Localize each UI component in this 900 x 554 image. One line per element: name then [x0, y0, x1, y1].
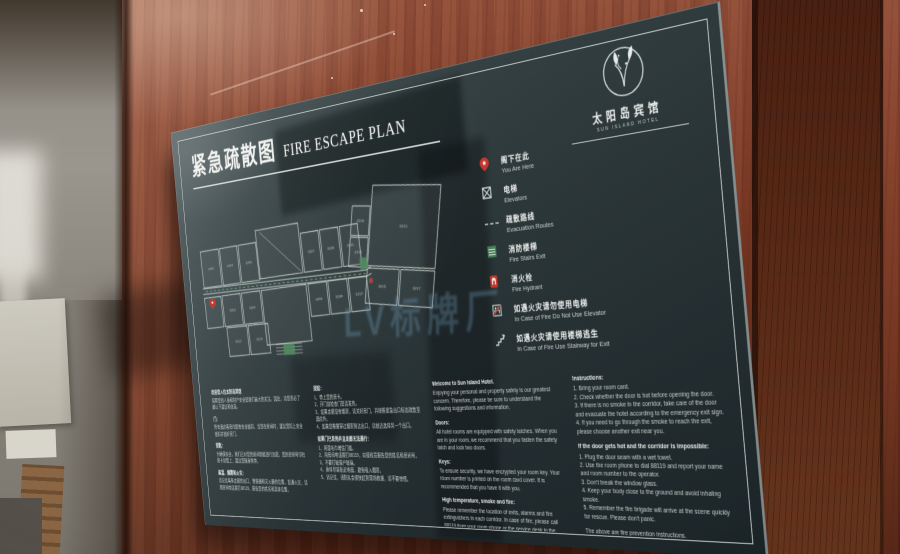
fire-hydrant-marker — [369, 278, 373, 282]
text-paragraph: All hotel rooms are equipped with safety… — [436, 428, 563, 453]
scene: 紧急疏散图 FIRE ESCAPE PLAN 太阳岛宾馆 SUN ISLAND … — [0, 0, 900, 554]
text-heading: 门： — [213, 415, 304, 424]
text-paragraph: To ensure security, we have encrypted yo… — [439, 468, 566, 495]
room-number: 3213 — [399, 224, 407, 228]
text-paragraph: 1、带上您的房卡。 2、开门前检查门是否发热。 3、如果走廊没有烟雾，请关好房门… — [314, 391, 423, 431]
text-paragraph: 请记住每条走廊的出口、警报器和灭火器的位置。如遇火灾，请用房间电话拨打88119… — [219, 478, 311, 495]
elevator-icon — [482, 184, 498, 204]
room-number: 3215 — [378, 285, 386, 289]
text-paragraph: 1. Plug the door seam with a wet towel. … — [579, 453, 735, 528]
room-number: 3212 — [235, 339, 242, 343]
fire-stairs-marker — [283, 343, 295, 354]
text-paragraph: Enjoying your personal and property safe… — [433, 386, 560, 414]
room-number: 3218 — [356, 219, 364, 223]
floor-plan: 3201320332053207320932113202320432063208… — [190, 154, 475, 371]
legend-labels: 阁下在此You Are Here — [500, 148, 534, 175]
text-paragraph: 所有酒店客房均配有安全锁扣。当您在房间时，建议您扣上安全锁扣并锁好房门。 — [214, 423, 306, 438]
room-number: 3217 — [412, 286, 420, 290]
text-heading: 钥匙： — [216, 443, 308, 450]
text-heading: If the door gets hot and the corridor is… — [578, 443, 728, 452]
legend-labels: 如遇火灾请使用楼梯逃生In Case of Fire Use Stairway … — [516, 326, 610, 353]
text-paragraph: 保障您的人身和财产安全是我们最大的关注。因此，请您务必了解以下建议和信息。 — [212, 395, 304, 412]
text-paragraph: The above are fire prevention instructio… — [585, 527, 736, 541]
legend-labels: 电梯Elevators — [503, 180, 528, 205]
text-heading: 如果门已发热并且走廊无法通行： — [317, 436, 424, 444]
legend-labels: 如遇火灾请勿使用电梯In Case of Fire Do Not Use Ele… — [513, 294, 606, 323]
stairway-icon — [494, 332, 510, 350]
legend-labels: 疏散路线Evacuation Routes — [505, 206, 553, 234]
room-number: 3214 — [256, 337, 263, 341]
legend: 阁下在此You Are Here电梯Elevators疏散路线Evacuatio… — [479, 118, 723, 363]
hotel-logo-icon — [598, 39, 648, 103]
sign-title-en: FIRE ESCAPE PLAN — [283, 115, 407, 161]
text-paragraph: 1. Bring your room card. 2. Check whethe… — [573, 380, 727, 436]
hydrant-icon — [489, 273, 505, 293]
room-number: 3216 — [354, 250, 362, 254]
footer-column: 须知：1、带上您的房卡。 2、开门前检查门是否发热。 3、如果走廊没有烟雾，请关… — [313, 381, 431, 525]
legend-label-en: Fire Hydrant — [512, 283, 543, 294]
footer-column: Welcome to Sun Island Hotel.Enjoying you… — [432, 376, 570, 533]
text-paragraph: Please remember the location of exits, a… — [443, 506, 572, 541]
footer-column: 欢迎您入住太阳岛宾馆保障您的人身和财产安全是我们最大的关注。因此，请您务必了解以… — [211, 386, 313, 519]
text-heading: Keys: — [439, 458, 565, 468]
text-paragraph: 为确保安全，我们已对您的房间钥匙进行加密，您的房间号印在房卡封套上，建议您随身携… — [216, 451, 308, 466]
no-elevator-icon — [492, 303, 508, 322]
legend-labels: 消防楼梯Fire Stairs Exit — [508, 238, 546, 263]
legend-item: 如遇火灾请使用楼梯逃生In Case of Fire Use Stairway … — [494, 318, 721, 354]
text-heading: Doors: — [435, 417, 560, 427]
sign-perspective-wrap: 紧急疏散图 FIRE ESCAPE PLAN 太阳岛宾馆 SUN ISLAND … — [0, 0, 900, 554]
route-icon — [484, 214, 500, 232]
info-text-columns: 欢迎您入住太阳岛宾馆保障您的人身和财产安全是我们最大的关注。因此，请您务必了解以… — [211, 369, 736, 541]
fire-stairs-marker — [360, 257, 369, 269]
footer-column: Instructions:1. Bring your room card. 2.… — [572, 369, 736, 541]
legend-labels: 消火栓Fire Hydrant — [511, 269, 543, 293]
you-are-here-icon — [479, 155, 495, 177]
text-paragraph: 1、用湿毛巾堵住门缝。 2、用房间电话拨打88119，向接线员报告您的姓名和房间… — [318, 445, 427, 484]
fire-stairs-icon — [487, 244, 503, 263]
fire-escape-sign-panel: 紧急疏散图 FIRE ESCAPE PLAN 太阳岛宾馆 SUN ISLAND … — [171, 1, 769, 554]
